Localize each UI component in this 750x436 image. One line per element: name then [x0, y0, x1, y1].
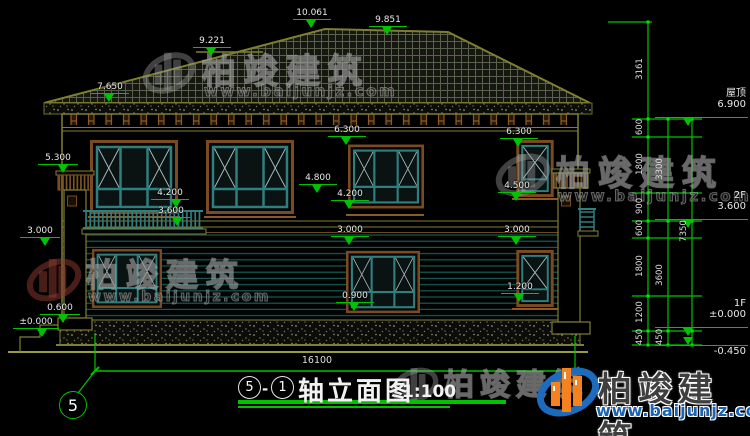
- eave-fascia-band: [44, 103, 592, 114]
- level-value: 9.851: [369, 15, 407, 26]
- dim-value: 7350: [679, 213, 689, 249]
- level-value: 4.200: [151, 188, 189, 199]
- left-balcony-slab: [82, 229, 206, 234]
- right-balcony-railing: [580, 209, 594, 231]
- level-value: 3.000: [498, 225, 536, 236]
- dim-value: 450: [635, 319, 645, 355]
- dim-value: 1800: [635, 146, 645, 182]
- baijun-logo-text: 柏竣建筑: [598, 362, 750, 436]
- right-pillar-ornament: [562, 196, 571, 206]
- level-value: 0.600: [40, 303, 80, 314]
- level-value: 10.061: [293, 8, 331, 19]
- level-value: 6.300: [500, 127, 538, 138]
- baijun-logo-url: www.baijunjz.com: [596, 401, 750, 420]
- window-1f-left: [93, 250, 161, 306]
- left-pillar-ornament: [68, 196, 77, 206]
- plinth-band: [60, 320, 580, 345]
- level-marker: ±0.000: [13, 317, 59, 337]
- level-value: 6.300: [328, 125, 366, 136]
- elevation-drawing-canvas: 柏竣建筑 www.baijunjz.com 柏竣建筑 www.baijunjz.…: [0, 0, 750, 436]
- storey-label: 屋顶: [655, 88, 748, 99]
- level-value: 3.000: [20, 226, 60, 237]
- left-pillar-shaft: [64, 190, 86, 318]
- axis-number: 1: [278, 380, 286, 395]
- axis-number: 5: [245, 380, 253, 395]
- dim-value: 1800: [635, 248, 645, 284]
- storey-label: 1F: [655, 298, 748, 309]
- drawing-title: 轴立面图: [298, 371, 414, 408]
- axis-bubble-5: 5: [59, 391, 87, 419]
- level-value: 7.650: [91, 82, 129, 93]
- axis-number: 5: [68, 396, 78, 415]
- dim-value: 3300: [655, 151, 665, 187]
- level-value: 4.800: [299, 173, 337, 184]
- dim-value: 450: [655, 319, 665, 355]
- level-value: ±0.000: [13, 317, 59, 328]
- dim-value: 3161: [635, 51, 645, 87]
- level-value: 3.600: [655, 201, 748, 212]
- title-axis-bubble-from: 5: [238, 376, 261, 399]
- right-balcony-slab: [578, 231, 598, 236]
- level-marker: 9.221: [193, 36, 231, 56]
- level-value: 1.200: [501, 282, 539, 293]
- level-value: 3.000: [331, 225, 369, 236]
- level-marker: 10.061: [293, 8, 331, 28]
- dim-value: 600: [635, 210, 645, 246]
- level-marker: 4.500: [498, 181, 536, 201]
- level-marker: 7.650: [91, 82, 129, 102]
- storey-level-marker: 屋顶 6.900: [655, 88, 748, 126]
- storey-level-marker: 1F ±0.000: [655, 298, 748, 336]
- drawing-scale: 1:100: [402, 382, 456, 402]
- left-pillar-capital: [58, 175, 92, 190]
- dim-value: 3600: [655, 257, 665, 293]
- level-value: 5.300: [38, 153, 78, 164]
- title-axis-bubble-to: 1: [271, 376, 294, 399]
- level-value: 3.600: [152, 206, 190, 217]
- level-value: 4.500: [498, 181, 536, 192]
- window-2f-center: [208, 142, 293, 213]
- level-marker: 3.000: [331, 225, 369, 245]
- storey-level-marker: 2F 3.600: [655, 190, 748, 228]
- level-value: 9.221: [193, 36, 231, 47]
- level-value: -0.450: [655, 346, 748, 357]
- level-marker: 5.300: [38, 153, 78, 173]
- level-value: 4.200: [331, 189, 369, 200]
- baijun-logo-icon: [536, 358, 600, 426]
- storey-level-marker: -0.450: [655, 337, 748, 357]
- level-marker: 4.200: [151, 188, 189, 208]
- level-value: 0.900: [336, 291, 374, 302]
- right-pillar-shaft: [558, 188, 580, 322]
- level-value: 6.900: [655, 99, 748, 110]
- rafter-tails: [62, 114, 578, 125]
- level-marker: 3.000: [498, 225, 536, 245]
- title-axis-separator: -: [262, 380, 268, 398]
- level-value: ±0.000: [655, 309, 748, 320]
- level-marker: 3.600: [152, 206, 190, 226]
- level-marker: 6.300: [328, 125, 366, 145]
- right-pillar-cap-plate: [552, 169, 590, 173]
- level-marker: 1.200: [501, 282, 539, 302]
- right-pillar-base: [552, 322, 590, 334]
- right-pillar-capital: [554, 173, 588, 188]
- level-marker: 6.300: [500, 127, 538, 147]
- level-marker: 3.000: [20, 226, 60, 246]
- total-width-dim: 16100: [287, 355, 347, 366]
- level-marker: 9.851: [369, 15, 407, 35]
- level-marker: 0.900: [336, 291, 374, 311]
- level-marker: 4.200: [331, 189, 369, 209]
- storey-label: 2F: [655, 190, 748, 201]
- dim-value: 600: [635, 109, 645, 145]
